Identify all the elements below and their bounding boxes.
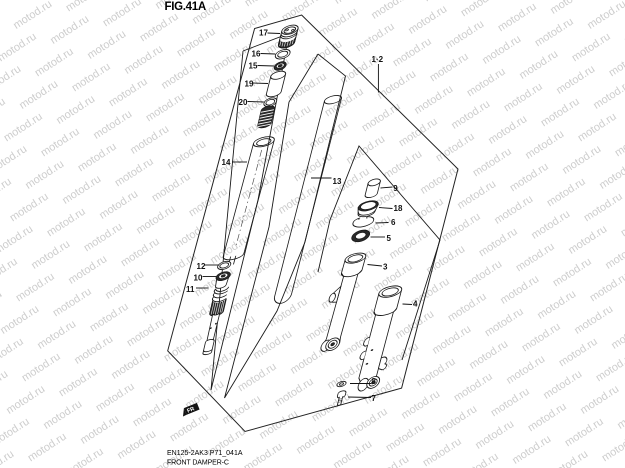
svg-text:5: 5 [387, 234, 392, 243]
svg-text:motod.ru: motod.ru [257, 408, 300, 442]
svg-text:7: 7 [372, 394, 377, 403]
svg-text:motod.ru: motod.ru [0, 288, 4, 322]
svg-text:motod.ru: motod.ru [458, 451, 501, 468]
svg-text:motod.ru: motod.ru [119, 236, 162, 270]
svg-text:motod.ru: motod.ru [510, 433, 553, 467]
svg-text:motod.ru: motod.ru [603, 238, 625, 272]
svg-text:motod.ru: motod.ru [138, 11, 181, 45]
svg-text:motod.ru: motod.ru [563, 416, 606, 450]
svg-text:motod.ru: motod.ru [144, 91, 187, 125]
svg-text:motod.ru: motod.ru [548, 0, 591, 17]
svg-text:motod.ru: motod.ru [294, 423, 337, 457]
svg-text:motod.ru: motod.ru [220, 393, 263, 427]
svg-text:motod.ru: motod.ru [29, 238, 72, 272]
svg-text:motod.ru: motod.ru [369, 0, 412, 22]
svg-text:1·2: 1·2 [372, 55, 384, 64]
svg-text:motod.ru: motod.ru [57, 366, 100, 400]
svg-text:motod.ru: motod.ru [520, 321, 563, 355]
svg-text:motod.ru: motod.ru [399, 388, 442, 422]
svg-text:10: 10 [194, 273, 203, 282]
svg-text:motod.ru: motod.ru [0, 143, 29, 177]
svg-text:motod.ru: motod.ru [443, 18, 486, 52]
svg-text:motod.ru: motod.ru [270, 103, 313, 137]
svg-text:motod.ru: motod.ru [489, 386, 532, 420]
svg-text:motod.ru: motod.ru [331, 438, 374, 468]
svg-text:motod.ru: motod.ru [578, 383, 621, 417]
svg-text:motod.ru: motod.ru [547, 448, 590, 468]
svg-text:motod.ru: motod.ru [273, 376, 316, 410]
svg-text:motod.ru: motod.ru [588, 271, 625, 305]
svg-text:motod.ru: motod.ru [533, 16, 576, 50]
svg-text:motod.ru: motod.ru [218, 121, 261, 155]
svg-text:motod.ru: motod.ru [0, 0, 17, 17]
svg-text:motod.ru: motod.ru [150, 171, 193, 205]
svg-text:3: 3 [383, 263, 388, 272]
svg-text:motod.ru: motod.ru [492, 193, 535, 227]
svg-text:motod.ru: motod.ru [594, 351, 625, 385]
svg-text:motod.ru: motod.ru [245, 248, 288, 282]
svg-text:motod.ru: motod.ru [11, 0, 54, 32]
svg-text:motod.ru: motod.ru [168, 411, 211, 445]
svg-text:6: 6 [391, 218, 396, 227]
svg-text:motod.ru: motod.ru [60, 173, 103, 207]
svg-text:motod.ru: motod.ru [582, 191, 625, 225]
svg-text:motod.ru: motod.ru [613, 126, 625, 160]
svg-text:motod.ru: motod.ru [301, 38, 344, 72]
svg-text:motod.ru: motod.ru [171, 218, 214, 252]
svg-text:motod.ru: motod.ru [109, 348, 152, 382]
svg-text:motod.ru: motod.ru [572, 303, 615, 337]
svg-text:motod.ru: motod.ru [17, 78, 60, 112]
svg-text:motod.ru: motod.ru [597, 158, 625, 192]
svg-text:motod.ru: motod.ru [585, 0, 625, 32]
svg-text:motod.ru: motod.ru [508, 161, 551, 195]
svg-text:motod.ru: motod.ru [313, 198, 356, 232]
svg-text:motod.ru: motod.ru [140, 283, 183, 317]
svg-text:motod.ru: motod.ru [360, 101, 403, 135]
svg-text:motod.ru: motod.ru [421, 436, 464, 468]
svg-text:motod.ru: motod.ru [26, 431, 69, 465]
svg-text:17: 17 [259, 29, 268, 38]
svg-text:motod.ru: motod.ru [600, 431, 625, 465]
svg-text:motod.ru: motod.ru [214, 313, 257, 347]
svg-text:motod.ru: motod.ru [619, 206, 625, 240]
svg-text:motod.ru: motod.ru [615, 398, 625, 432]
svg-text:motod.ru: motod.ru [473, 418, 516, 452]
svg-text:motod.ru: motod.ru [541, 368, 584, 402]
svg-text:motod.ru: motod.ru [539, 96, 582, 130]
svg-text:motod.ru: motod.ru [8, 191, 51, 225]
svg-text:motod.ru: motod.ru [461, 258, 504, 292]
svg-text:motod.ru: motod.ru [406, 3, 449, 37]
svg-text:motod.ru: motod.ru [85, 28, 128, 62]
svg-text:motod.ru: motod.ru [48, 13, 91, 47]
svg-text:motod.ru: motod.ru [91, 108, 134, 142]
svg-text:motod.ru: motod.ru [63, 446, 106, 468]
svg-text:motod.ru: motod.ru [125, 316, 168, 350]
svg-text:motod.ru: motod.ru [344, 133, 387, 167]
svg-text:motod.ru: motod.ru [230, 281, 273, 315]
svg-text:motod.ru: motod.ru [551, 256, 594, 290]
svg-text:motod.ru: motod.ru [0, 448, 16, 468]
svg-text:motod.ru: motod.ru [175, 26, 218, 60]
svg-text:motod.ru: motod.ru [323, 86, 366, 120]
svg-text:motod.ru: motod.ru [101, 0, 144, 29]
svg-text:motod.ru: motod.ru [384, 421, 427, 455]
svg-text:motod.ru: motod.ru [146, 363, 189, 397]
svg-text:motod.ru: motod.ru [609, 318, 625, 352]
svg-text:EN125-2AK3 P71_041A: EN125-2AK3 P71_041A [167, 450, 243, 457]
svg-text:motod.ru: motod.ru [159, 58, 202, 92]
svg-text:motod.ru: motod.ru [557, 336, 600, 370]
svg-text:motod.ru: motod.ru [477, 226, 520, 260]
svg-text:motod.ru: motod.ru [280, 0, 323, 24]
svg-text:motod.ru: motod.ru [70, 61, 113, 95]
svg-text:motod.ru: motod.ru [554, 63, 597, 97]
svg-text:11: 11 [186, 285, 195, 294]
svg-text:motod.ru: motod.ru [452, 371, 495, 405]
svg-text:motod.ru: motod.ru [51, 286, 94, 320]
svg-text:motod.ru: motod.ru [88, 301, 131, 335]
svg-text:motod.ru: motod.ru [403, 196, 446, 230]
svg-text:motod.ru: motod.ru [4, 383, 47, 417]
svg-text:motod.ru: motod.ru [354, 21, 397, 55]
svg-text:motod.ru: motod.ru [391, 36, 434, 70]
svg-text:motod.ru: motod.ru [39, 126, 82, 160]
svg-text:motod.ru: motod.ru [82, 221, 125, 255]
svg-text:motod.ru: motod.ru [459, 0, 502, 19]
svg-text:motod.ru: motod.ru [45, 206, 88, 240]
svg-text:FRONT DAMPER-C: FRONT DAMPER-C [167, 460, 229, 467]
svg-text:motod.ru: motod.ru [66, 253, 109, 287]
svg-text:14: 14 [222, 158, 231, 167]
svg-text:motod.ru: motod.ru [165, 138, 208, 172]
svg-text:motod.ru: motod.ru [467, 338, 510, 372]
svg-text:motod.ru: motod.ru [430, 323, 473, 357]
svg-text:motod.ru: motod.ru [14, 271, 57, 305]
svg-text:motod.ru: motod.ru [292, 151, 335, 185]
svg-text:motod.ru: motod.ru [446, 291, 489, 325]
svg-text:motod.ru: motod.ru [0, 176, 14, 210]
svg-text:motod.ru: motod.ru [0, 96, 8, 130]
svg-text:motod.ru: motod.ru [0, 368, 10, 402]
svg-text:motod.ru: motod.ru [251, 328, 294, 362]
svg-text:motod.ru: motod.ru [347, 406, 390, 440]
svg-text:motod.ru: motod.ru [514, 241, 557, 275]
svg-text:motod.ru: motod.ru [483, 306, 526, 340]
svg-text:motod.ru: motod.ru [428, 51, 471, 85]
svg-text:motod.ru: motod.ru [381, 148, 424, 182]
svg-text:motod.ru: motod.ru [545, 176, 588, 210]
svg-text:motod.ru: motod.ru [131, 396, 174, 430]
svg-text:motod.ru: motod.ru [591, 78, 625, 112]
svg-text:motod.ru: motod.ru [529, 208, 572, 242]
svg-text:motod.ru: motod.ru [576, 111, 619, 145]
svg-text:motod.ru: motod.ru [243, 0, 286, 9]
svg-text:12: 12 [197, 262, 206, 271]
svg-text:motod.ru: motod.ru [33, 46, 76, 80]
svg-text:19: 19 [245, 79, 254, 88]
svg-text:motod.ru: motod.ru [455, 178, 498, 212]
svg-text:motod.ru: motod.ru [78, 413, 121, 447]
svg-text:motod.ru: motod.ru [412, 83, 455, 117]
svg-text:4: 4 [413, 300, 418, 309]
svg-text:motod.ru: motod.ru [471, 146, 514, 180]
svg-text:motod.ru: motod.ru [387, 228, 430, 262]
svg-text:motod.ru: motod.ru [496, 1, 539, 35]
svg-text:motod.ru: motod.ru [0, 336, 26, 370]
svg-text:motod.ru: motod.ru [415, 356, 458, 390]
svg-text:motod.ru: motod.ru [0, 223, 35, 257]
svg-text:motod.ru: motod.ru [535, 288, 578, 322]
svg-text:motod.ru: motod.ru [523, 128, 566, 162]
svg-text:motod.ru: motod.ru [504, 353, 547, 387]
svg-text:motod.ru: motod.ru [107, 76, 150, 110]
svg-text:motod.ru: motod.ru [526, 401, 569, 435]
svg-text:motod.ru: motod.ru [422, 0, 465, 4]
svg-text:20: 20 [239, 98, 248, 107]
svg-text:motod.ru: motod.ru [332, 0, 375, 7]
svg-text:motod.ru: motod.ru [0, 256, 20, 290]
svg-text:15: 15 [249, 61, 258, 70]
svg-text:motod.ru: motod.ru [465, 66, 508, 100]
svg-text:motod.ru: motod.ru [181, 106, 224, 140]
svg-text:motod.ru: motod.ru [517, 48, 560, 82]
svg-text:motod.ru: motod.ru [236, 361, 279, 395]
svg-text:motod.ru: motod.ru [502, 81, 545, 115]
svg-text:motod.ru: motod.ru [122, 43, 165, 77]
svg-text:motod.ru: motod.ru [317, 6, 360, 40]
svg-text:motod.ru: motod.ru [267, 296, 310, 330]
svg-text:9: 9 [393, 184, 398, 193]
svg-text:motod.ru: motod.ru [607, 46, 625, 80]
svg-text:motod.ru: motod.ru [0, 16, 2, 50]
svg-text:motod.ru: motod.ru [23, 158, 66, 192]
svg-text:motod.ru: motod.ru [94, 381, 137, 415]
svg-text:motod.ru: motod.ru [2, 111, 45, 145]
svg-text:motod.ru: motod.ru [0, 31, 39, 65]
svg-text:motod.ru: motod.ru [0, 63, 23, 97]
svg-text:motod.ru: motod.ru [76, 141, 119, 175]
svg-text:8: 8 [372, 377, 377, 386]
svg-text:motod.ru: motod.ru [570, 31, 613, 65]
svg-text:motod.ru: motod.ru [434, 131, 477, 165]
svg-text:motod.ru: motod.ru [286, 71, 329, 105]
svg-text:motod.ru: motod.ru [424, 243, 467, 277]
svg-text:motod.ru: motod.ru [196, 73, 239, 107]
svg-text:motod.ru: motod.ru [35, 318, 78, 352]
svg-text:motod.ru: motod.ru [375, 68, 418, 102]
svg-text:motod.ru: motod.ru [72, 333, 115, 367]
svg-text:FIG.41A: FIG.41A [165, 1, 206, 13]
svg-text:motod.ru: motod.ru [566, 223, 609, 257]
svg-text:motod.ru: motod.ru [449, 98, 492, 132]
svg-text:motod.ru: motod.ru [64, 0, 107, 14]
svg-text:motod.ru: motod.ru [156, 251, 199, 285]
svg-text:motod.ru: motod.ru [103, 268, 146, 302]
svg-text:motod.ru: motod.ru [128, 123, 171, 157]
svg-text:motod.ru: motod.ru [54, 93, 97, 127]
svg-text:motod.ru: motod.ru [97, 188, 140, 222]
svg-text:motod.ru: motod.ru [242, 441, 285, 468]
svg-text:16: 16 [252, 49, 261, 58]
svg-text:motod.ru: motod.ru [41, 398, 84, 432]
svg-text:13: 13 [333, 177, 342, 186]
svg-text:motod.ru: motod.ru [498, 273, 541, 307]
svg-text:motod.ru: motod.ru [20, 351, 63, 385]
svg-text:motod.ru: motod.ru [0, 303, 41, 337]
svg-text:motod.ru: motod.ru [480, 33, 523, 67]
svg-text:motod.ru: motod.ru [486, 113, 529, 147]
svg-text:motod.ru: motod.ru [368, 453, 411, 468]
svg-text:motod.ru: motod.ru [0, 416, 32, 450]
svg-text:motod.ru: motod.ru [134, 203, 177, 237]
svg-text:motod.ru: motod.ru [560, 143, 603, 177]
svg-text:motod.ru: motod.ru [113, 156, 156, 190]
svg-text:motod.ru: motod.ru [298, 231, 341, 265]
svg-text:motod.ru: motod.ru [115, 428, 158, 462]
svg-text:18: 18 [394, 204, 403, 213]
svg-text:motod.ru: motod.ru [436, 403, 479, 437]
